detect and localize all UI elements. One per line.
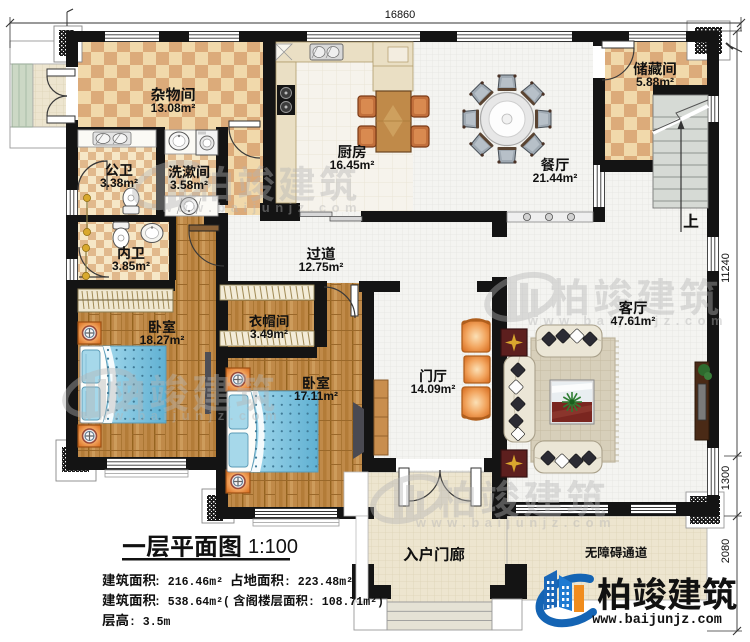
svg-text:: 3.5m: : 3.5m bbox=[129, 616, 171, 629]
svg-text:13.08m²: 13.08m² bbox=[151, 101, 196, 115]
svg-text:: 108.71m²): : 108.71m²) bbox=[308, 596, 384, 609]
svg-text:: 216.46m²: : 216.46m² bbox=[154, 576, 223, 589]
svg-text:1:100: 1:100 bbox=[248, 536, 298, 558]
svg-text:3.49m²: 3.49m² bbox=[250, 327, 288, 341]
svg-text:2080: 2080 bbox=[720, 539, 732, 563]
svg-text:47.61m²: 47.61m² bbox=[611, 314, 656, 328]
svg-text:14.09m²: 14.09m² bbox=[411, 382, 456, 396]
svg-text:: 223.48m²: : 223.48m² bbox=[284, 576, 353, 589]
svg-text:12.75m²: 12.75m² bbox=[299, 260, 344, 274]
svg-text:1300: 1300 bbox=[720, 466, 732, 490]
svg-text:www.baijunjz.com: www.baijunjz.com bbox=[81, 408, 282, 423]
svg-text:16860: 16860 bbox=[385, 9, 416, 21]
svg-text:www.baijunjz.com: www.baijunjz.com bbox=[592, 613, 722, 628]
svg-text:16.45m²: 16.45m² bbox=[330, 158, 375, 172]
svg-text:11240: 11240 bbox=[720, 253, 732, 283]
svg-text:5.88m²: 5.88m² bbox=[636, 75, 674, 89]
svg-text:21.44m²: 21.44m² bbox=[533, 171, 578, 185]
svg-text:3.38m²: 3.38m² bbox=[100, 176, 138, 190]
svg-text:www.baijunjz.com: www.baijunjz.com bbox=[415, 515, 616, 530]
svg-text:17.11m²: 17.11m² bbox=[294, 389, 338, 403]
svg-text:3.85m²: 3.85m² bbox=[112, 259, 150, 273]
svg-text:www.baijunjz.com: www.baijunjz.com bbox=[161, 200, 362, 215]
svg-text:3.58m²: 3.58m² bbox=[170, 178, 208, 192]
svg-text:18.27m²: 18.27m² bbox=[140, 333, 185, 347]
svg-text:: 538.64m²(: : 538.64m²( bbox=[154, 596, 230, 609]
